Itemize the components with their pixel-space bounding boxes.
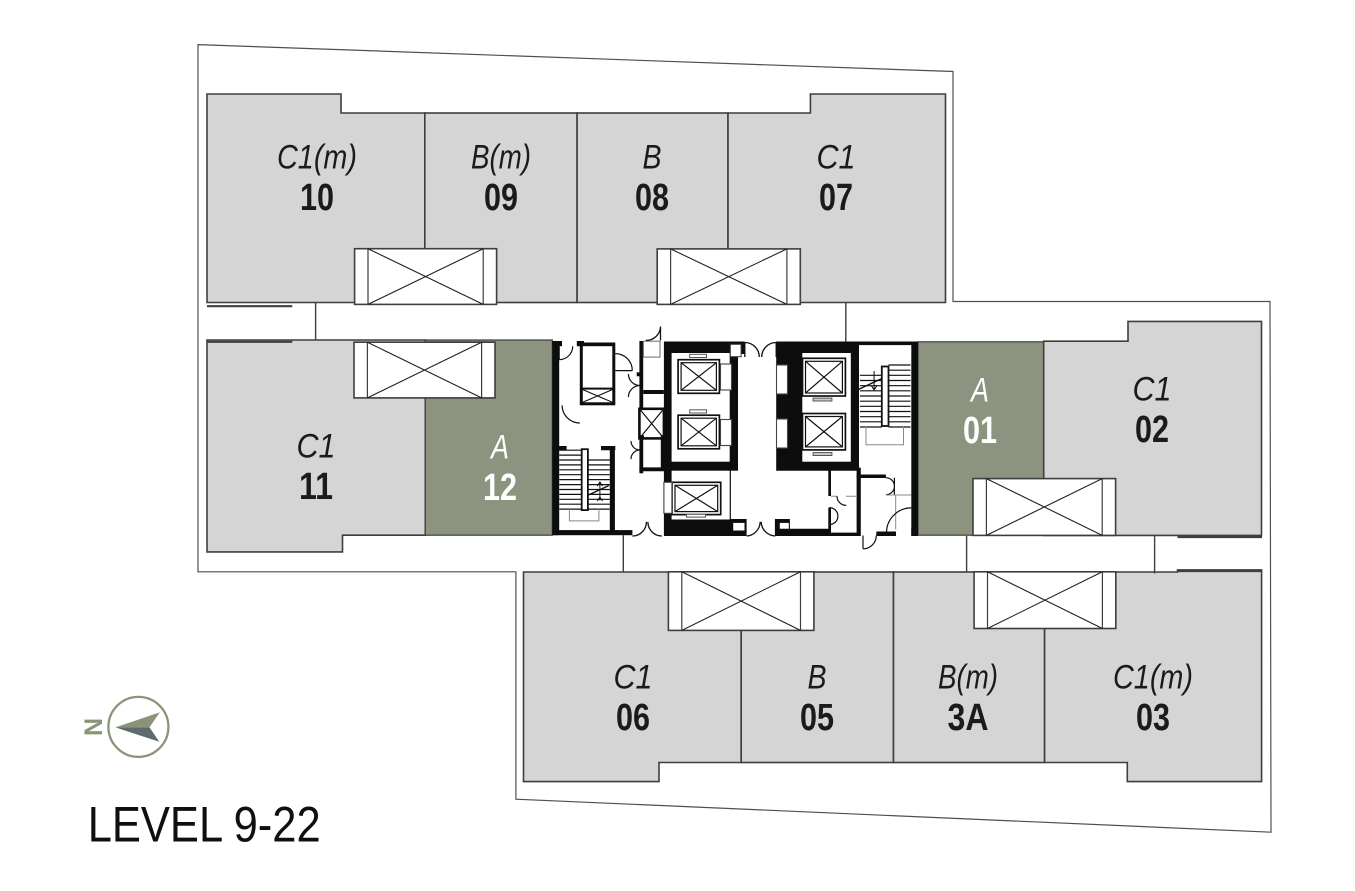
svg-text:02: 02 [1135, 409, 1169, 451]
svg-text:01: 01 [963, 410, 997, 452]
svg-text:08: 08 [635, 177, 669, 219]
svg-text:3A: 3A [948, 697, 989, 739]
svg-text:B: B [808, 659, 827, 697]
svg-text:LEVEL 9-22: LEVEL 9-22 [88, 796, 321, 852]
svg-text:10: 10 [300, 177, 334, 219]
svg-text:11: 11 [299, 466, 333, 508]
svg-text:03: 03 [1136, 697, 1170, 739]
svg-text:C1: C1 [614, 659, 653, 697]
svg-text:C1: C1 [1133, 371, 1172, 409]
svg-text:N: N [79, 718, 107, 736]
svg-text:B(m): B(m) [471, 138, 531, 176]
svg-text:06: 06 [616, 697, 650, 739]
svg-text:C1: C1 [817, 138, 856, 176]
svg-text:05: 05 [800, 697, 834, 739]
svg-text:09: 09 [484, 177, 518, 219]
svg-text:C1(m): C1(m) [277, 138, 357, 176]
svg-text:C1: C1 [297, 428, 336, 466]
svg-text:A: A [489, 429, 509, 467]
svg-text:C1(m): C1(m) [1113, 659, 1193, 697]
svg-text:B: B [643, 138, 662, 176]
svg-text:07: 07 [819, 177, 853, 219]
svg-text:12: 12 [483, 467, 517, 509]
svg-text:A: A [969, 372, 989, 410]
svg-text:B(m): B(m) [938, 659, 998, 697]
